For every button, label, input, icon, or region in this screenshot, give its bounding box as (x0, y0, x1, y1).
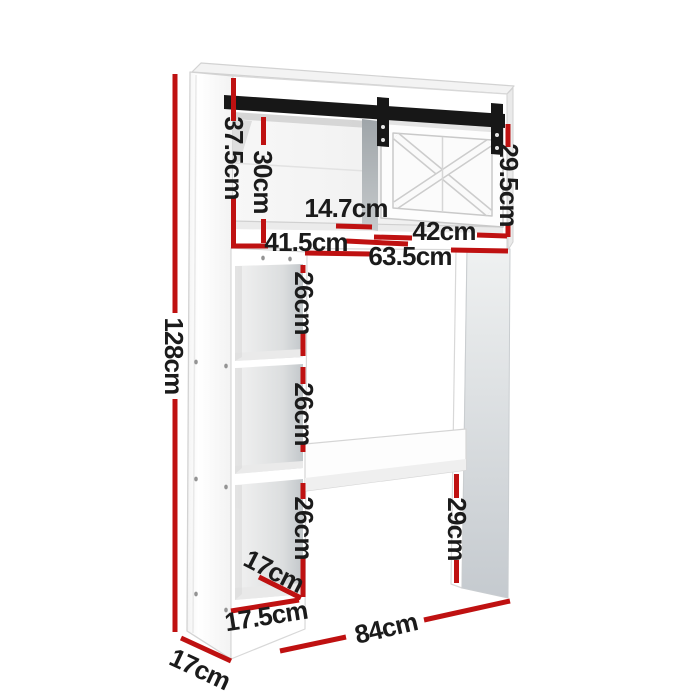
dim-label-overall-width: 84cm (352, 606, 420, 649)
dim-label-top-inner-depth: 14.7cm (304, 193, 387, 223)
dim-label-cube-top: 26cm (289, 271, 319, 334)
diagram-svg: 128cm 37.5cm 30cm 29.5cm 14.7cm 41.5cm 4… (0, 0, 700, 700)
dim-label-overall-height: 128cm (159, 318, 189, 395)
dim-label-door-height: 29.5cm (494, 143, 524, 226)
dim-line-middle-span (451, 250, 508, 251)
dim-label-top-left-height: 37.5cm (219, 116, 249, 199)
dim-label-middle-span: 63.5cm (368, 241, 451, 271)
product-dimension-diagram: 128cm 37.5cm 30cm 29.5cm 14.7cm 41.5cm 4… (0, 0, 700, 700)
dim-line-door-width (374, 237, 412, 238)
opening-left-shadows (235, 266, 242, 600)
dim-label-cube-bottom: 26cm (289, 496, 319, 559)
dim-label-leg-gap: 29cm (442, 497, 472, 560)
dim-line-overall-width (424, 601, 510, 620)
dim-label-left-opening-width: 41.5cm (264, 227, 347, 257)
dim-line-overall-width (280, 637, 346, 651)
dim-line-door-width (477, 235, 507, 236)
dim-label-cube-middle: 26cm (289, 382, 319, 445)
dim-label-top-inner-height: 30cm (248, 150, 278, 213)
